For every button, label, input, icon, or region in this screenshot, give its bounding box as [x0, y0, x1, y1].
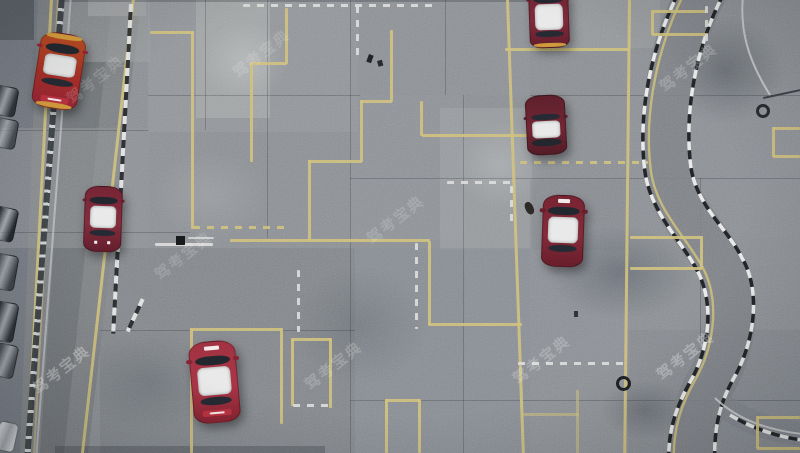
film-grain-overlay [0, 0, 800, 453]
aerial-photo-driving-test-course: 驾考宝典驾考宝典驾考宝典驾考宝典驾考宝典驾考宝典驾考宝典驾考宝典驾考宝典 [0, 0, 800, 453]
